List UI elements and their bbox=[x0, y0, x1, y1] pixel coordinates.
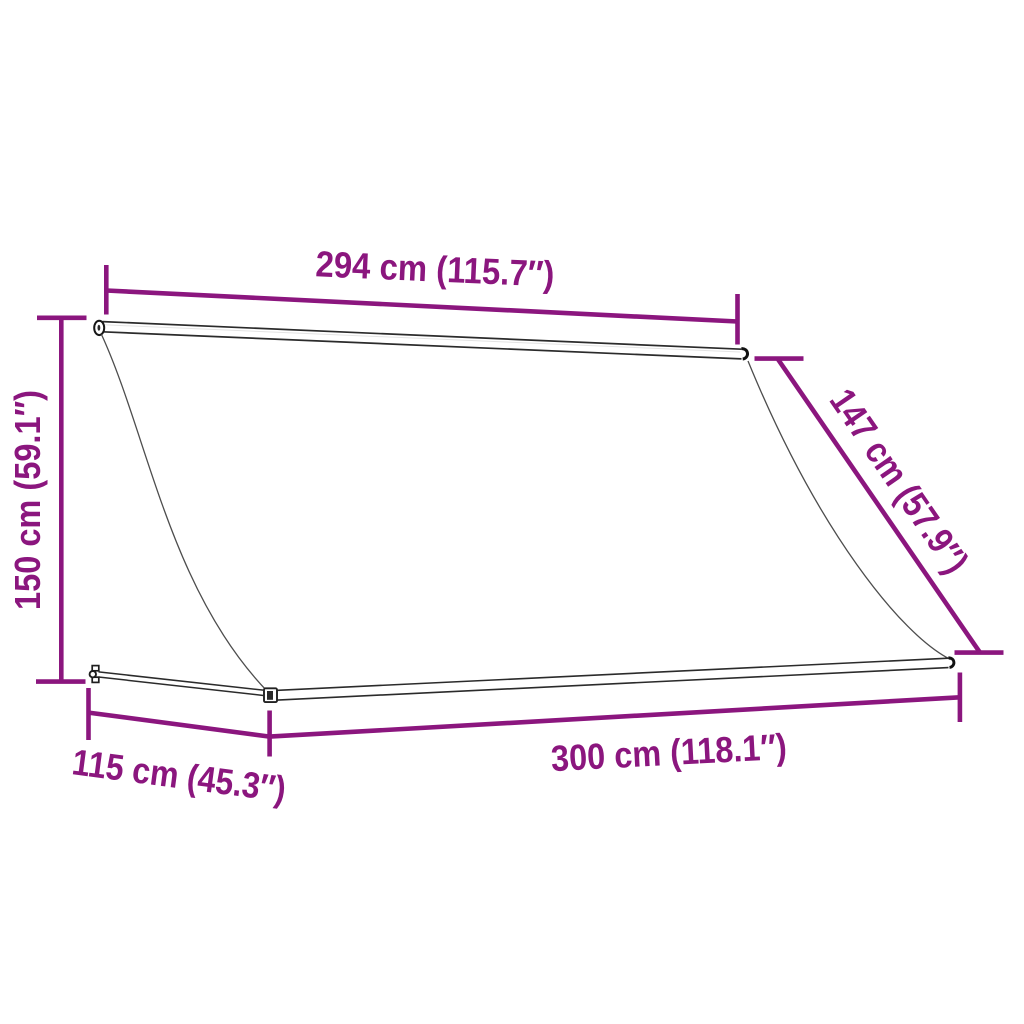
svg-text:150 cm (59.1″): 150 cm (59.1″) bbox=[7, 390, 48, 610]
